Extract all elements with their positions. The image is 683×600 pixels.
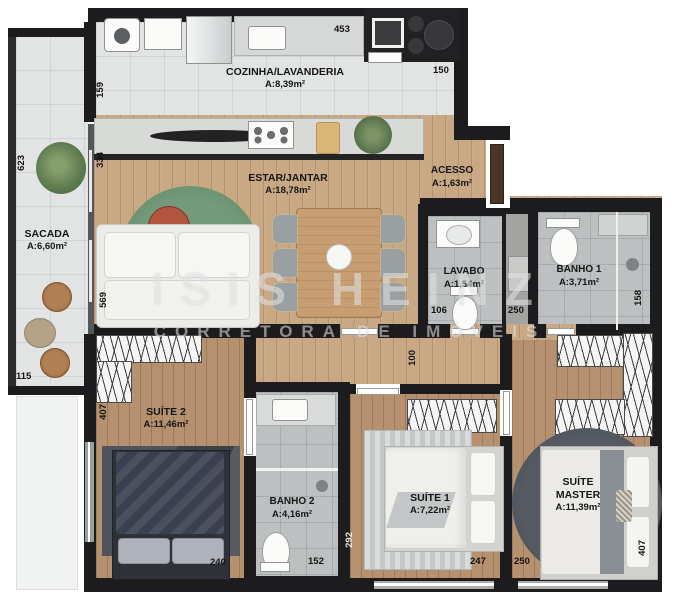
- room-name: SACADA: [25, 228, 70, 240]
- room-name: BANHO 2: [269, 496, 314, 507]
- room-area: A:3,71m²: [546, 277, 612, 289]
- suite1-pillow-1: [470, 452, 496, 496]
- kitchen-sink: [248, 26, 286, 50]
- closet-suite2-side: [97, 362, 131, 402]
- dim-sacada-height: 623: [17, 155, 27, 171]
- outside-above-acesso: [468, 0, 512, 126]
- dim-estar-left-lower: 569: [99, 292, 109, 308]
- dining-chair-5: [380, 248, 406, 278]
- room-label-suite-master: SUÍTE MASTER A:11,39m²: [546, 476, 610, 514]
- dim-banho2-height: 292: [345, 532, 355, 548]
- room-label-lavabo: LAVABO A:1,54m²: [433, 266, 495, 290]
- banho1-toilet-tank: [546, 218, 580, 228]
- sacada-wall-top: [8, 28, 90, 37]
- outside-top-right: [508, 0, 683, 196]
- window-suite2-left: [85, 442, 94, 542]
- dim-kitchen-top: 453: [334, 25, 350, 35]
- dim-shaft-width: 250: [508, 306, 524, 316]
- dim-kitchen-right: 150: [433, 66, 449, 76]
- room-area: A:11,39m²: [546, 502, 610, 514]
- burner-large-icon: [424, 20, 454, 50]
- suite1-door: [357, 388, 399, 395]
- room-area: A:1,54m²: [433, 279, 495, 291]
- dim-suite2-width: 240: [210, 558, 226, 568]
- room-name: BANHO 1: [556, 264, 601, 275]
- dim-kitchen-left: 159: [96, 82, 106, 98]
- outside-lower-left-area: [16, 396, 78, 590]
- sacada-wall-left: [8, 28, 16, 394]
- dining-chair-3: [272, 282, 298, 312]
- banho2-shower-head-icon: [316, 480, 328, 492]
- wall-kitchen-left: [84, 22, 96, 122]
- room-label-banho1: BANHO 1 A:3,71m²: [546, 264, 612, 288]
- dim-suite1-width: 247: [470, 557, 486, 567]
- banho1-vanity: [598, 214, 648, 236]
- room-name: ACESSO: [431, 165, 473, 176]
- banho1-shower-head-icon: [626, 258, 639, 271]
- dining-chair-6: [380, 282, 406, 312]
- room-area: A:1,63m²: [422, 178, 482, 190]
- plant-island: [354, 116, 392, 154]
- dining-chair-1: [272, 214, 298, 244]
- sofa-cushion-2: [178, 232, 250, 278]
- lavabo-toilet: [452, 296, 478, 330]
- burner-small-icon-2: [408, 38, 424, 54]
- dishwasher: [368, 52, 402, 63]
- window-suite1-bottom: [374, 581, 494, 589]
- closet-suite2-top: [97, 336, 201, 362]
- room-label-suite2: SUÍTE 2 A:11,46m²: [126, 406, 206, 431]
- room-label-cozinha: COZINHA/LAVANDERIA A:8,39m²: [205, 66, 365, 91]
- dim-master-width: 250: [514, 557, 530, 567]
- dim-lavabo-width: 106: [431, 306, 447, 316]
- master-accent-pillow: [616, 490, 632, 522]
- dining-chair-2: [272, 248, 298, 278]
- closet-suite1: [408, 400, 496, 432]
- floor-plan: COZINHA/LAVANDERIA A:8,39m² ESTAR/JANTAR…: [0, 0, 683, 600]
- room-label-estar: ESTAR/JANTAR A:18,78m²: [228, 172, 348, 197]
- wall-banho1-top: [498, 198, 662, 212]
- sofa-seat: [104, 280, 250, 320]
- room-name: SUÍTE 2: [146, 406, 186, 418]
- sacada-stool-1: [42, 282, 72, 312]
- room-area: A:7,22m²: [394, 505, 466, 517]
- hall-door: [341, 328, 378, 335]
- dim-banho2-width: 152: [308, 557, 324, 567]
- banho2-shower-glass: [256, 468, 338, 471]
- banho2-sink: [272, 399, 308, 421]
- window-master-bottom: [518, 581, 608, 589]
- dining-chair-4: [380, 214, 406, 244]
- prep-sink: [372, 18, 404, 48]
- dim-banho1-height: 158: [634, 290, 644, 306]
- sacada-sliding-panel-1: [89, 150, 92, 212]
- banho2-toilet-tank: [260, 562, 290, 572]
- room-label-acesso: ACESSO A:1,63m²: [422, 165, 482, 189]
- closet-master-right: [624, 334, 652, 436]
- burner-small-icon-1: [408, 16, 424, 32]
- dim-suite2-height: 407: [99, 404, 109, 420]
- cutting-board: [316, 122, 340, 154]
- wall-acesso-step: [454, 126, 510, 140]
- sofa-cushion-1: [104, 232, 176, 278]
- banho1-toilet: [550, 228, 578, 266]
- room-area: A:4,16m²: [254, 509, 330, 521]
- room-area: A:18,78m²: [228, 185, 348, 197]
- fridge: [186, 16, 232, 64]
- washing-machine-door-icon: [114, 28, 130, 44]
- dim-sacada-width: 115: [16, 372, 31, 382]
- sacada-stool-2: [40, 348, 70, 378]
- plant-sacada: [36, 142, 86, 194]
- room-label-sacada: SACADA A:6,60m²: [14, 228, 80, 253]
- sacada-sliding-panel-2: [89, 240, 92, 302]
- suite2-duvet: [116, 452, 224, 534]
- banho1-shower-glass: [616, 212, 618, 330]
- room-area: A:8,39m²: [205, 79, 365, 91]
- room-name: LAVABO: [444, 266, 485, 277]
- suite2-door: [246, 399, 253, 455]
- island-burners-icon: [252, 125, 290, 145]
- wall-suite2-right: [244, 334, 256, 578]
- dim-estar-left-upper: 334: [96, 152, 106, 168]
- suite1-pillow-2: [470, 500, 496, 544]
- room-name: COZINHA/LAVANDERIA: [226, 66, 344, 78]
- master-door: [503, 391, 510, 435]
- room-name: ESTAR/JANTAR: [248, 172, 328, 184]
- sacada-ottoman: [24, 318, 56, 348]
- dim-hall-width: 100: [408, 350, 418, 366]
- island-base: [94, 154, 424, 160]
- room-name: SUÍTE 1: [410, 492, 450, 504]
- closet-master-top: [558, 336, 626, 366]
- dining-centerpiece: [326, 244, 352, 270]
- entry-door: [490, 144, 504, 204]
- dim-master-height: 407: [638, 540, 648, 556]
- sacada-wall-bottom: [8, 386, 90, 395]
- lavabo-sink-icon: [446, 225, 472, 245]
- room-area: A:6,60m²: [14, 241, 80, 253]
- suite2-pillow-1: [118, 538, 170, 564]
- room-area: A:11,46m²: [126, 419, 206, 431]
- room-label-banho2: BANHO 2 A:4,16m²: [254, 496, 330, 520]
- banho1-door: [547, 328, 575, 335]
- kitchen-cabinet: [144, 18, 182, 50]
- room-name: SUÍTE MASTER: [556, 476, 600, 501]
- room-label-suite1: SUÍTE 1 A:7,22m²: [394, 492, 466, 517]
